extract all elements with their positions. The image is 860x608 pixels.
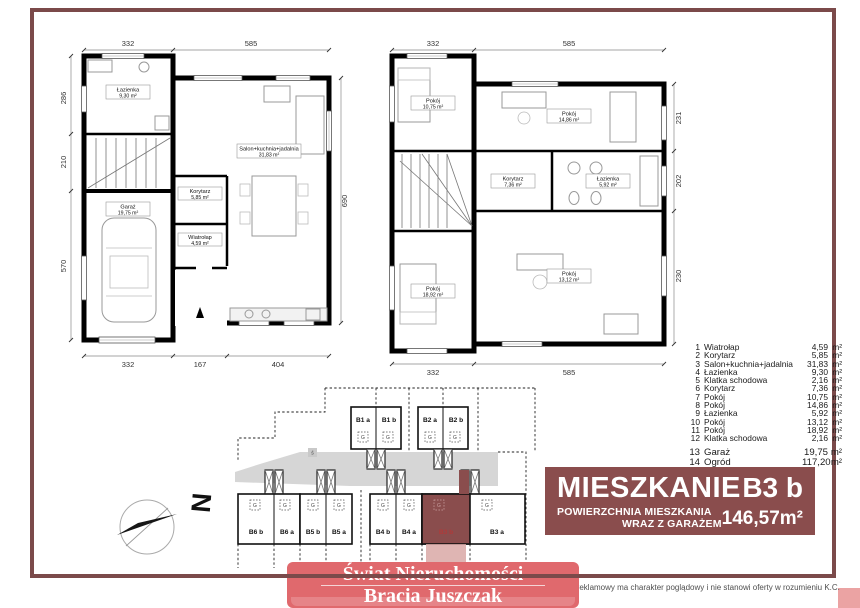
svg-text:G: G — [381, 503, 385, 509]
brand-banner: Świat Nieruchomości Bracia Juszczak — [287, 562, 579, 608]
site-plan: ś B1 a B1 b G G — [230, 382, 542, 568]
svg-text:570: 570 — [59, 260, 68, 273]
unit-label-b1b: B1 b — [382, 417, 396, 424]
svg-text:G: G — [283, 503, 287, 509]
unit-label-b3a: B3 a — [490, 529, 504, 536]
svg-text:G: G — [253, 503, 257, 509]
svg-text:585: 585 — [563, 39, 576, 48]
svg-text:230: 230 — [674, 270, 683, 283]
unit-label-b5a: B5 a — [332, 529, 346, 536]
panel-unit-number: B3 b — [742, 472, 803, 504]
highlighted-unit-b3b — [422, 494, 470, 544]
svg-text:G: G — [337, 503, 341, 509]
svg-text:4,59 m²: 4,59 m² — [191, 241, 209, 247]
highlighted-garage-b3b — [459, 470, 469, 494]
unit-label-b4b: B4 b — [376, 529, 390, 536]
panel-subtitle-line1: POWIERZCHNIA MIESZKANIA — [557, 506, 722, 518]
unit-label-b5b: B5 b — [306, 529, 320, 536]
panel-subtitle-line2: WRAZ Z GARAŻEM — [557, 518, 722, 530]
svg-text:332: 332 — [427, 39, 440, 48]
svg-text:585: 585 — [245, 39, 258, 48]
svg-text:31,83 m²: 31,83 m² — [259, 153, 280, 159]
building-B6: G G B6 b B6 a — [238, 494, 300, 544]
svg-text:14,86 m²: 14,86 m² — [559, 118, 580, 124]
north-arrow-icon — [117, 514, 177, 535]
gf-dim-right: 690 — [339, 76, 349, 325]
unit-label-b6b: B6 b — [249, 529, 263, 536]
svg-text:10,75 m²: 10,75 m² — [423, 105, 444, 111]
room-legend: 1Wiatrołap4,59m² 2Korytarz5,85m² 3Salon+… — [686, 343, 838, 469]
svg-text:404: 404 — [272, 360, 285, 369]
svg-text:332: 332 — [427, 368, 440, 377]
svg-text:210: 210 — [59, 156, 68, 169]
unit-label-b4a: B4 a — [402, 529, 416, 536]
svg-text:690: 690 — [340, 195, 349, 208]
gf-dim-left: 286 210 570 — [59, 54, 73, 342]
apartment-info-panel: MIESZKANIE B3 b POWIERZCHNIA MIESZKANIA … — [545, 467, 815, 535]
svg-text:9,30 m²: 9,30 m² — [119, 94, 137, 100]
legal-disclaimer: Materiał reklamowy ma charakter poglądow… — [546, 583, 858, 592]
compass: N — [92, 472, 222, 577]
svg-text:G: G — [386, 435, 390, 441]
svg-text:231: 231 — [674, 112, 683, 125]
svg-text:5,85 m²: 5,85 m² — [191, 195, 209, 201]
frame-bottom-border — [30, 574, 836, 578]
ff-dim-top: 332 585 — [390, 39, 666, 52]
gf-dim-bottom: 332 167 404 — [82, 354, 331, 369]
panel-title: MIESZKANIE — [557, 472, 741, 505]
svg-text:286: 286 — [59, 92, 68, 105]
ff-dim-right: 231 202 230 — [672, 82, 683, 346]
unit-label-b2b: B2 b — [449, 417, 463, 424]
real-estate-flyer: 332 585 286 210 570 690 332 167 404 — [0, 0, 860, 608]
building-B4: G G B4 b B4 a — [370, 494, 422, 544]
svg-text:585: 585 — [563, 368, 576, 377]
svg-text:G: G — [311, 503, 315, 509]
gf-dim-top: 332 585 — [82, 39, 331, 52]
first-floor-plan: 332 585 231 202 230 332 585 — [352, 26, 702, 391]
svg-text:G: G — [428, 435, 432, 441]
svg-text:13,12 m²: 13,12 m² — [559, 278, 580, 284]
svg-text:G: G — [437, 503, 441, 509]
unit-label-b6a: B6 a — [280, 529, 294, 536]
svg-text:332: 332 — [122, 39, 135, 48]
unit-label-b3b: B3 b — [439, 529, 453, 536]
building-B5: G G B5 b B5 a — [300, 494, 352, 544]
svg-text:5,92 m²: 5,92 m² — [599, 183, 617, 189]
svg-text:167: 167 — [194, 360, 207, 369]
ff-dim-bottom: 332 585 — [390, 362, 666, 377]
svg-text:19,75 m²: 19,75 m² — [118, 211, 139, 217]
brand-subname: Bracia Juszczak — [287, 586, 579, 607]
kitchen-counter-icon — [230, 308, 327, 321]
svg-text:G: G — [485, 503, 489, 509]
svg-text:332: 332 — [122, 360, 135, 369]
north-label: N — [185, 492, 217, 514]
svg-text:G: G — [361, 435, 365, 441]
panel-total-area: 146,57m² — [722, 508, 803, 530]
svg-text:202: 202 — [674, 175, 683, 188]
svg-text:18,92 m²: 18,92 m² — [423, 293, 444, 299]
svg-text:7,36 m²: 7,36 m² — [504, 183, 522, 189]
unit-label-b1a: B1 a — [356, 417, 370, 424]
unit-label-b2a: B2 a — [423, 417, 437, 424]
svg-text:G: G — [453, 435, 457, 441]
svg-text:G: G — [407, 503, 411, 509]
ground-floor-plan: 332 585 286 210 570 690 332 167 404 — [44, 26, 374, 391]
legend-row: 12Klatka schodowa2,16m² — [686, 434, 838, 442]
